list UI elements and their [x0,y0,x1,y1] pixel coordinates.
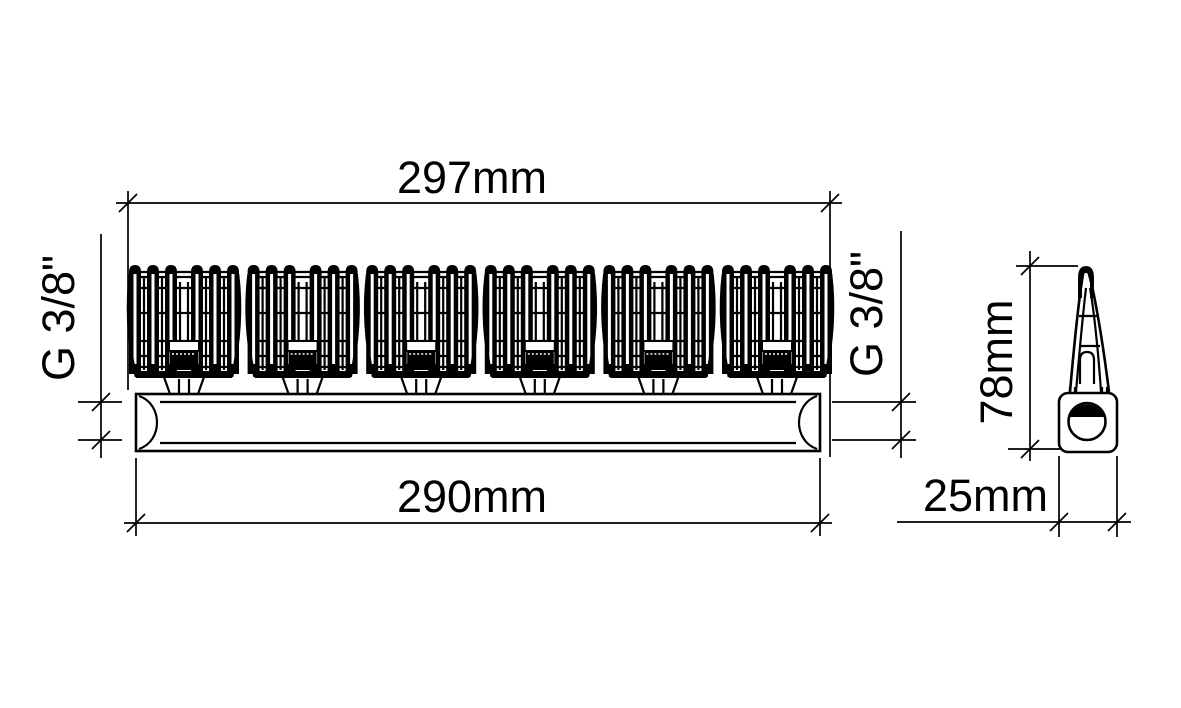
brush-element [365,265,477,394]
dim-thread-left: G 3/8" [33,234,122,458]
technical-drawing-canvas: 297mm 290mm G 3/8" G 3/8" [0,0,1181,708]
side-body-block [1059,393,1117,452]
brush-element [128,265,240,394]
cone-core-u [1080,352,1094,384]
dim-label-side-height: 78mm [971,299,1022,424]
dim-label-overall-width: 297mm [397,152,547,203]
tube-end-dome-right [799,396,817,449]
front-view: 297mm 290mm G 3/8" G 3/8" [33,152,916,536]
drawing-sheet: 297mm 290mm G 3/8" G 3/8" [0,0,1181,708]
dim-label-thread-right: G 3/8" [841,251,892,377]
side-brush-cone [1070,266,1109,394]
dim-label-side-depth: 25mm [923,470,1048,521]
brush-element [721,265,833,394]
dim-extension-lines [1059,456,1117,537]
dim-side-depth: 25mm [897,456,1131,537]
dim-side-height: 78mm [971,251,1078,461]
cone-outline [1070,269,1109,393]
dim-label-body-length: 290mm [397,471,547,522]
dim-thread-right: G 3/8" [832,231,916,458]
tube-bore-lines [160,402,796,443]
side-view: 78mm 25mm [897,251,1131,537]
manifold-tube [136,394,820,451]
tube-end-dome-left [139,396,157,449]
dim-extension-lines [832,402,916,440]
dim-body-length: 290mm [124,458,832,536]
dim-label-thread-left: G 3/8" [33,255,84,381]
brush-element [602,265,714,394]
brush-element [247,265,359,394]
brush-elements [128,265,833,394]
brush-element [484,265,596,394]
dim-extension-lines [78,402,122,440]
